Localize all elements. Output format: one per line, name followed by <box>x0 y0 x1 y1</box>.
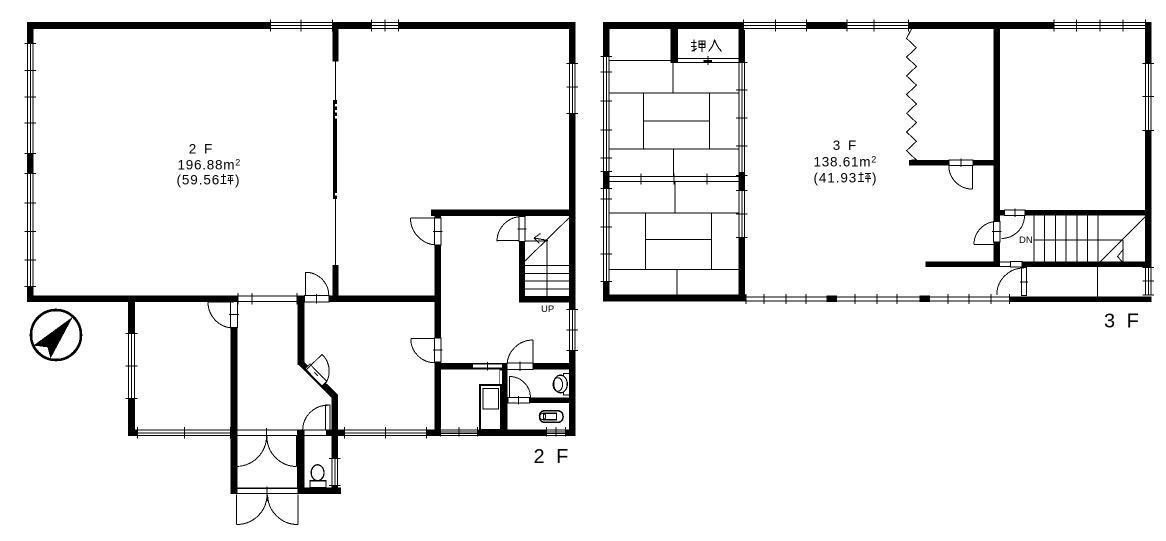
svg-text:): ) <box>872 171 877 186</box>
svg-text:DN: DN <box>1019 235 1033 246</box>
svg-text:138.61m2: 138.61m2 <box>814 155 878 170</box>
svg-text:(59.56: (59.56 <box>177 173 221 188</box>
svg-text:3 F: 3 F <box>1104 311 1142 333</box>
svg-text:3 F: 3 F <box>833 138 859 153</box>
svg-text:2 F: 2 F <box>534 446 572 468</box>
svg-text:): ) <box>235 173 240 188</box>
svg-text:(41.93: (41.93 <box>814 171 858 186</box>
svg-text:196.88m2: 196.88m2 <box>178 158 242 173</box>
svg-text:2 F: 2 F <box>189 142 215 157</box>
svg-text:UP: UP <box>541 304 554 315</box>
